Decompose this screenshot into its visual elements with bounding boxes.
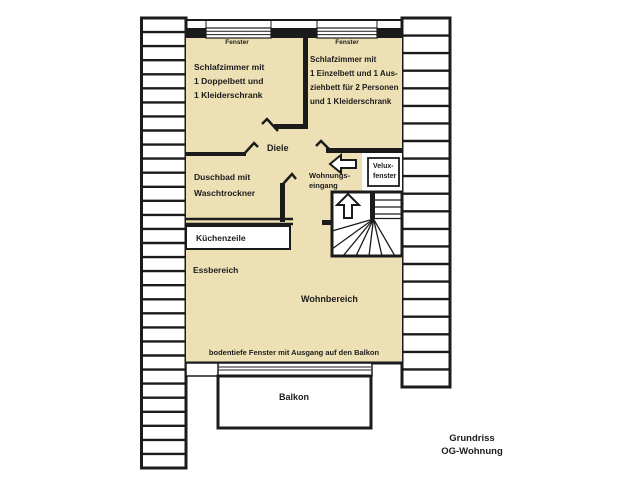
floor-window-band (186, 363, 372, 376)
wall-stub (322, 220, 332, 225)
window-top-right-icon (317, 21, 377, 38)
velux-window-box (368, 158, 399, 186)
staircase (322, 192, 402, 256)
roof-hatching-left (142, 18, 187, 468)
floor-plan: Fenster Fenster Schlafzimmer mit 1 Doppe… (0, 0, 640, 480)
balcony-outline (218, 376, 371, 428)
floor-plan-drawing (0, 0, 640, 480)
window-top-left-icon (206, 21, 271, 38)
kitchenette-counter (186, 226, 290, 249)
roof-hatching-right (402, 18, 450, 387)
